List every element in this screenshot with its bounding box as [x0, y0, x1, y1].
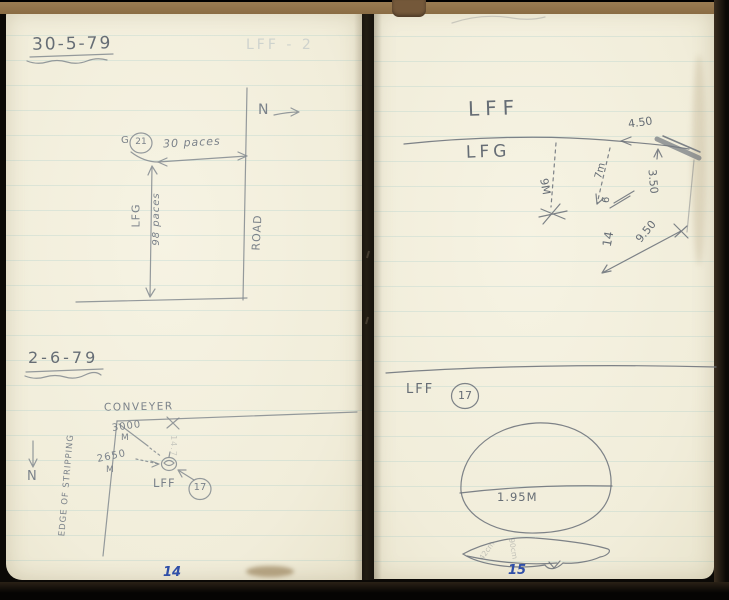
binding-stitches: [366, 251, 369, 324]
entry1-date: 30-5-79: [32, 35, 113, 53]
faint-measure: 14.7: [169, 431, 177, 461]
distance-1-unit: M: [121, 434, 130, 443]
right-page-strokes: [386, 16, 716, 568]
measure-350: 3.50: [646, 165, 660, 198]
entry2-date: 2-6-79: [28, 350, 98, 366]
section-label-lff: LFF: [406, 383, 434, 396]
side-measure: 98 paces: [152, 184, 162, 254]
distance-2-unit: M: [106, 466, 115, 475]
station-prefix: G: [121, 136, 130, 146]
notebook-scan: 30-5-79 LFF - 2 N G 21 30 paces LFG 98 p…: [0, 0, 729, 600]
north-label-2: N: [27, 470, 38, 483]
right-page-number: 15: [508, 564, 526, 577]
left-page-number: 14: [163, 566, 181, 579]
entry1-ghost-note: LFF - 2: [246, 38, 314, 52]
side-label-lfg: LFG: [131, 196, 142, 236]
measure-450: 4.50: [627, 115, 653, 129]
left-page-strokes: [25, 54, 357, 556]
north-label-1: N: [258, 103, 269, 117]
road-label: ROAD: [250, 209, 263, 256]
sub-area-label-lfg: LFG: [466, 143, 511, 162]
conveyor-label: CONVEYER: [104, 401, 174, 413]
tunnel-width: 1.95M: [497, 492, 538, 504]
top-measure: 30 paces: [163, 135, 221, 149]
station-number: 21: [133, 138, 149, 147]
area-label-lff: LFF: [468, 97, 521, 119]
section-number: 17: [455, 390, 475, 401]
target-number-left: 17: [191, 483, 209, 493]
target-label-left: LFF: [153, 478, 176, 490]
sketch-strokes: [0, 0, 729, 600]
